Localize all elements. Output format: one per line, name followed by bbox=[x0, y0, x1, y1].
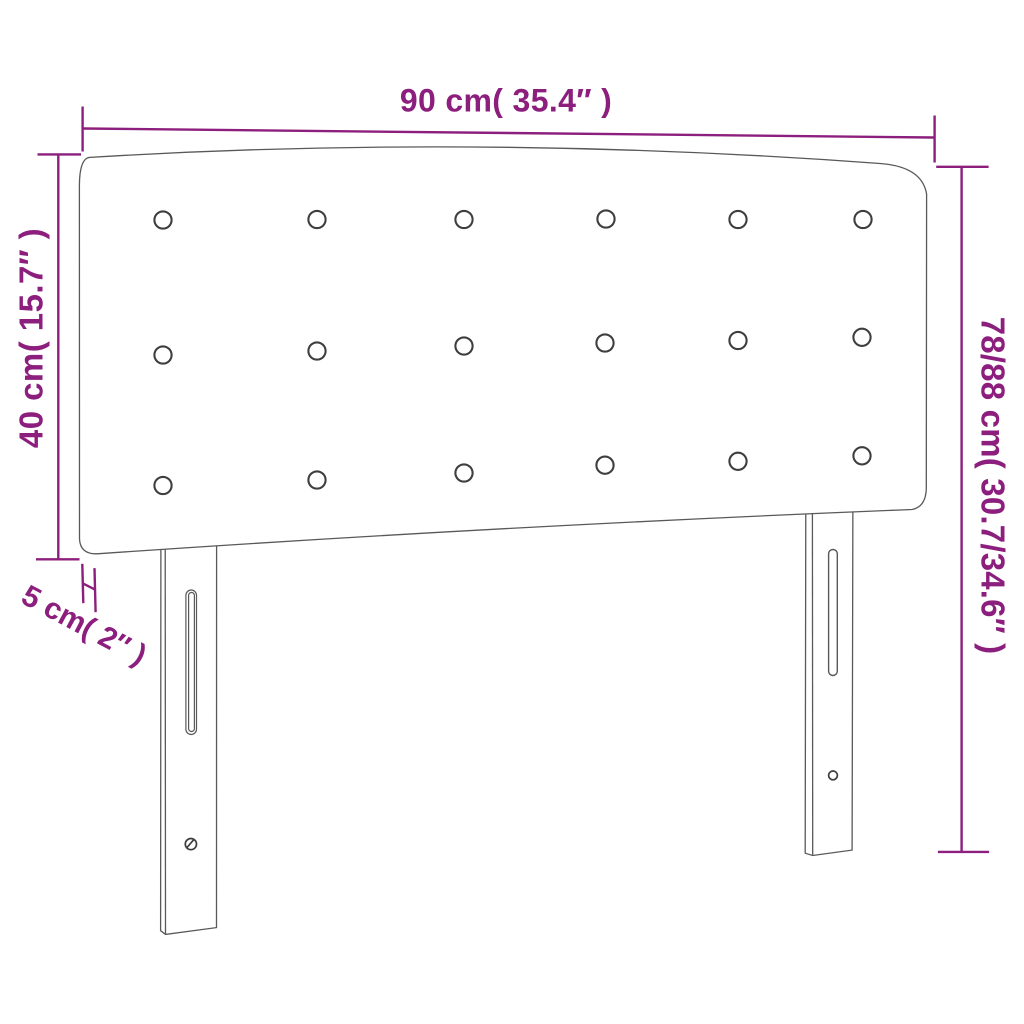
svg-text:78/88 cm( 30.7/34.6″ ): 78/88 cm( 30.7/34.6″ ) bbox=[975, 317, 1012, 655]
svg-text:40 cm( 15.7″ ): 40 cm( 15.7″ ) bbox=[13, 228, 50, 448]
svg-text:90 cm( 35.4″ ): 90 cm( 35.4″ ) bbox=[400, 83, 612, 119]
